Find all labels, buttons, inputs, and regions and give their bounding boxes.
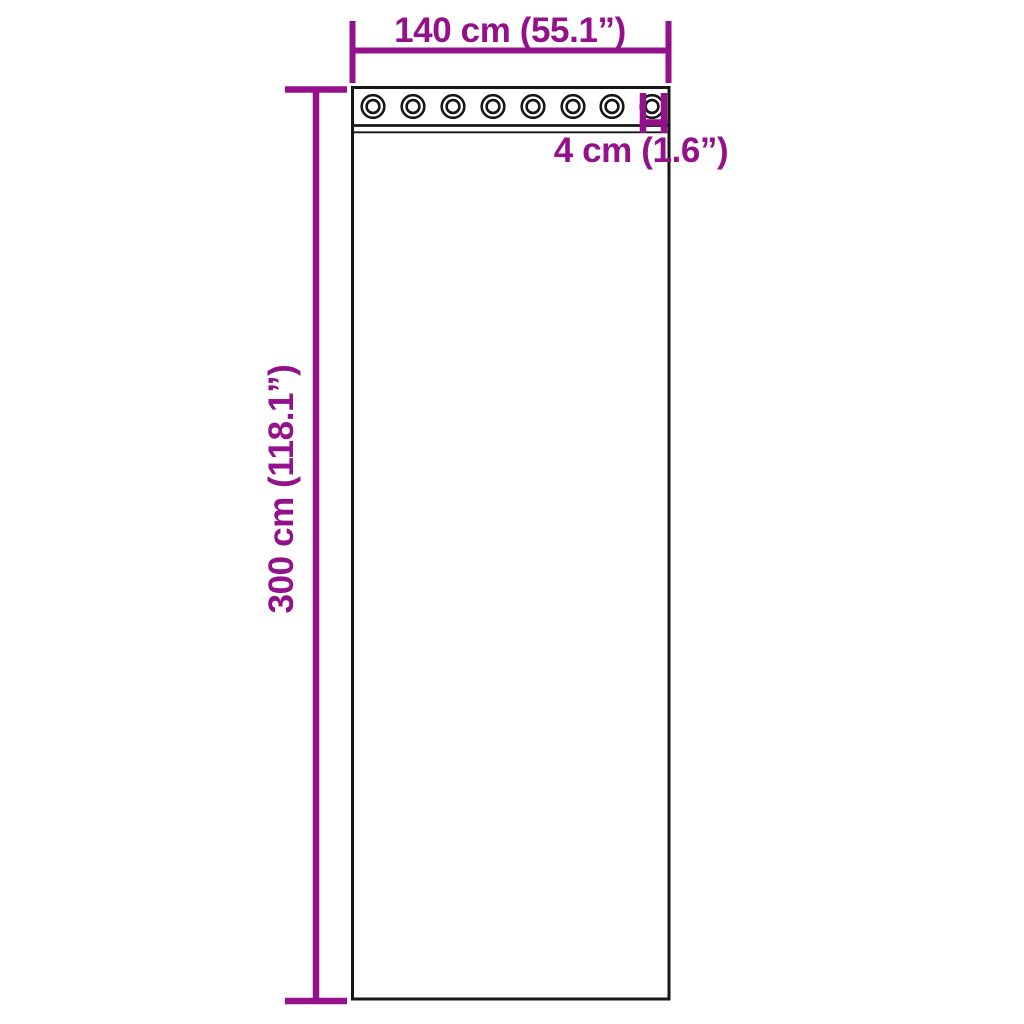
grommet-icon [362,95,385,118]
grommet-icon [562,95,585,118]
grommet-icon [442,95,465,118]
grommet-icon [482,95,505,118]
grommet-icon [522,95,545,118]
curtain-dimension-drawing: 140 cm (55.1”) 300 cm (118.1”) [0,0,1024,1024]
width-dimension-label: 140 cm (55.1”) [394,11,626,50]
height-dimension-label: 300 cm (118.1”) [262,365,301,614]
dimension-diagram: 140 cm (55.1”) 300 cm (118.1”) [0,0,1024,1024]
grommet-diameter-label: 4 cm (1.6”) [554,131,729,170]
curtain-outline [353,88,670,1000]
grommet-icon [601,95,624,118]
width-dimension: 140 cm (55.1”) [353,11,669,83]
height-dimension: 300 cm (118.1”) [262,90,347,1002]
grommet-icon [402,95,425,118]
curtain-panel [353,88,670,1000]
